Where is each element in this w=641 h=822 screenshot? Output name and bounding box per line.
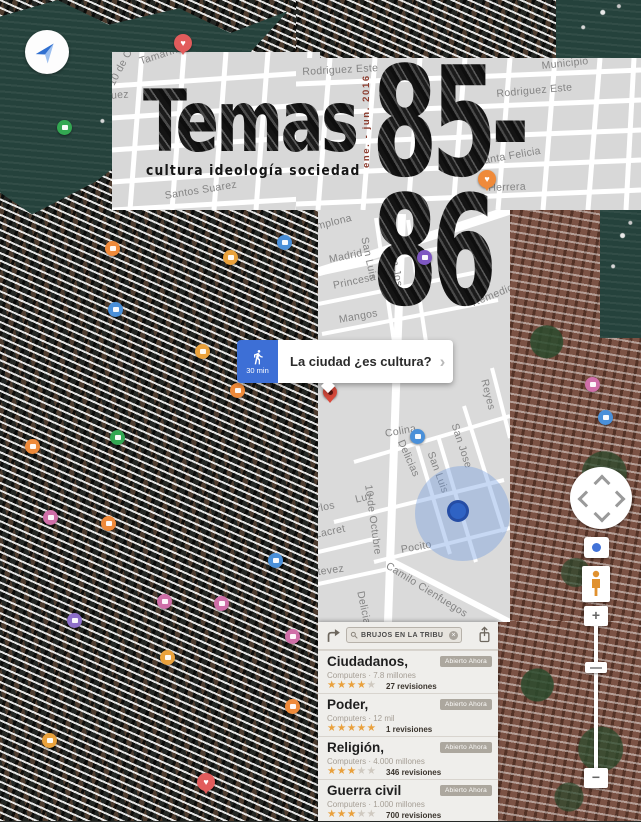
poi-glyph	[110, 430, 125, 445]
directions-icon[interactable]	[325, 627, 342, 644]
review-count: 27 revisiones	[386, 682, 437, 691]
current-location-dot	[447, 500, 469, 522]
hotel-pin[interactable]	[268, 553, 283, 568]
poi-glyph	[268, 553, 283, 568]
poi-glyph	[105, 241, 120, 256]
favorite-pin[interactable]: ♥	[197, 773, 215, 791]
restaurant-pin[interactable]	[101, 516, 116, 531]
poi-glyph	[277, 235, 292, 250]
poi-glyph	[43, 510, 58, 525]
shopping-pin[interactable]	[285, 629, 300, 644]
poi-glyph	[57, 120, 72, 135]
poi-glyph	[410, 429, 425, 444]
compass-navigation-button[interactable]	[25, 30, 69, 74]
restaurant-pin[interactable]	[230, 383, 245, 398]
magazine-title: Temas	[143, 84, 356, 161]
open-now-badge: Abierto Ahora	[440, 656, 492, 667]
shopping-pin[interactable]	[43, 510, 58, 525]
search-field[interactable]: ×	[346, 627, 462, 643]
handle-grip	[590, 667, 602, 669]
transit-station-pin[interactable]	[410, 429, 425, 444]
chevron-right-icon[interactable]: ›	[440, 352, 446, 372]
restaurant-pin[interactable]	[105, 241, 120, 256]
poi-glyph	[223, 250, 238, 265]
search-input[interactable]	[361, 632, 446, 639]
lagoon-water-top-right	[556, 0, 641, 62]
pan-control[interactable]	[570, 467, 632, 529]
poi-glyph	[285, 629, 300, 644]
result-title: Ciudadanos,	[327, 654, 408, 669]
result-title: Poder,	[327, 697, 368, 712]
pan-left-icon[interactable]	[578, 491, 595, 508]
pan-up-icon[interactable]	[594, 475, 611, 492]
pin-tail	[202, 788, 210, 794]
issue-date: ene. - jun. 2016	[361, 74, 372, 168]
zoom-slider-handle[interactable]	[585, 662, 607, 673]
pin-tail	[179, 49, 187, 55]
canal-water-right	[600, 210, 641, 338]
photo-pin[interactable]	[42, 733, 57, 748]
zoom-in-button[interactable]: +	[584, 606, 608, 626]
lodging-pin[interactable]	[110, 430, 125, 445]
review-count: 700 revisiones	[386, 811, 441, 820]
favorite-pin[interactable]: ♥	[478, 170, 496, 188]
transit-station-pin[interactable]	[417, 250, 432, 265]
location-dot-icon	[592, 543, 601, 552]
navigation-arrow-icon	[29, 34, 65, 70]
favorite-pin[interactable]: ♥	[174, 34, 192, 52]
photo-pin[interactable]	[195, 344, 210, 359]
poi-glyph	[25, 439, 40, 454]
pin-tail	[326, 398, 334, 403]
result-item-guerra-civil[interactable]: Guerra civil Abierto Ahora Computers · 1…	[318, 779, 498, 822]
star-rating: ★★★★★	[327, 765, 377, 777]
pin-tail	[483, 185, 491, 191]
hotel-pin[interactable]	[598, 410, 613, 425]
walk-duration: 30 min	[246, 366, 269, 375]
pegman-icon	[588, 570, 604, 598]
poi-glyph	[42, 733, 57, 748]
share-icon[interactable]	[478, 626, 491, 644]
my-location-button[interactable]	[584, 537, 609, 558]
walking-mode-box[interactable]: 30 min	[237, 340, 278, 383]
shopping-pin[interactable]	[214, 596, 229, 611]
hotel-pin[interactable]	[277, 235, 292, 250]
satellite-imagery-bottom-right	[497, 621, 641, 821]
hotel-pin[interactable]	[108, 302, 123, 317]
route-info-bubble[interactable]: 30 min La ciudad ¿es cultura? ›	[237, 340, 453, 383]
poi-glyph	[585, 377, 600, 392]
open-now-badge: Abierto Ahora	[440, 785, 492, 796]
issue-number: 85-86	[372, 58, 539, 316]
photo-pin[interactable]	[223, 250, 238, 265]
poi-glyph	[417, 250, 432, 265]
result-title: Guerra civil	[327, 783, 401, 798]
poi-glyph	[285, 699, 300, 714]
search-icon	[350, 631, 358, 639]
search-results-panel: × Ciudadanos, Abierto Ahora Computers · …	[318, 622, 498, 821]
star-rating: ★★★★★	[327, 679, 377, 691]
star-rating: ★★★★★	[327, 808, 377, 820]
poi-glyph	[101, 516, 116, 531]
pan-down-icon[interactable]	[594, 506, 611, 523]
result-item-poder[interactable]: Poder, Abierto Ahora Computers · 12 mil …	[318, 693, 498, 736]
walking-person-icon	[250, 349, 266, 365]
result-title: Religión,	[327, 740, 384, 755]
cafe-pin[interactable]	[160, 650, 175, 665]
cafe-pin[interactable]	[25, 439, 40, 454]
open-now-badge: Abierto Ahora	[440, 699, 492, 710]
zoom-out-button[interactable]: −	[584, 768, 608, 788]
shopping-pin[interactable]	[585, 377, 600, 392]
clear-search-icon[interactable]: ×	[449, 631, 458, 640]
poi-glyph	[157, 594, 172, 609]
poi-glyph	[214, 596, 229, 611]
pan-right-icon[interactable]	[609, 491, 626, 508]
zoom-slider-track[interactable]	[594, 626, 598, 768]
panel-header: ×	[318, 622, 498, 650]
lodging-pin[interactable]	[57, 120, 72, 135]
route-question-text: La ciudad ¿es cultura?	[290, 354, 432, 369]
result-item-ciudadanos[interactable]: Ciudadanos, Abierto Ahora Computers · 7.…	[318, 650, 498, 693]
open-now-badge: Abierto Ahora	[440, 742, 492, 753]
poi-glyph	[67, 613, 82, 628]
magazine-subtitle: cultura ideología sociedad	[146, 163, 360, 179]
poi-glyph	[598, 410, 613, 425]
poi-glyph	[108, 302, 123, 317]
result-item-religion[interactable]: Religión, Abierto Ahora Computers · 4.00…	[318, 736, 498, 779]
review-count: 346 revisiones	[386, 768, 441, 777]
route-question-card[interactable]: La ciudad ¿es cultura? ›	[278, 340, 453, 383]
museum-pin[interactable]	[67, 613, 82, 628]
poi-glyph	[160, 650, 175, 665]
restaurant-pin[interactable]	[285, 699, 300, 714]
review-count: 1 revisiones	[386, 725, 432, 734]
pegman-street-view-button[interactable]	[582, 566, 610, 602]
shopping-pin[interactable]	[157, 594, 172, 609]
poi-glyph	[230, 383, 245, 398]
star-rating: ★★★★★	[327, 722, 377, 734]
poi-glyph	[195, 344, 210, 359]
